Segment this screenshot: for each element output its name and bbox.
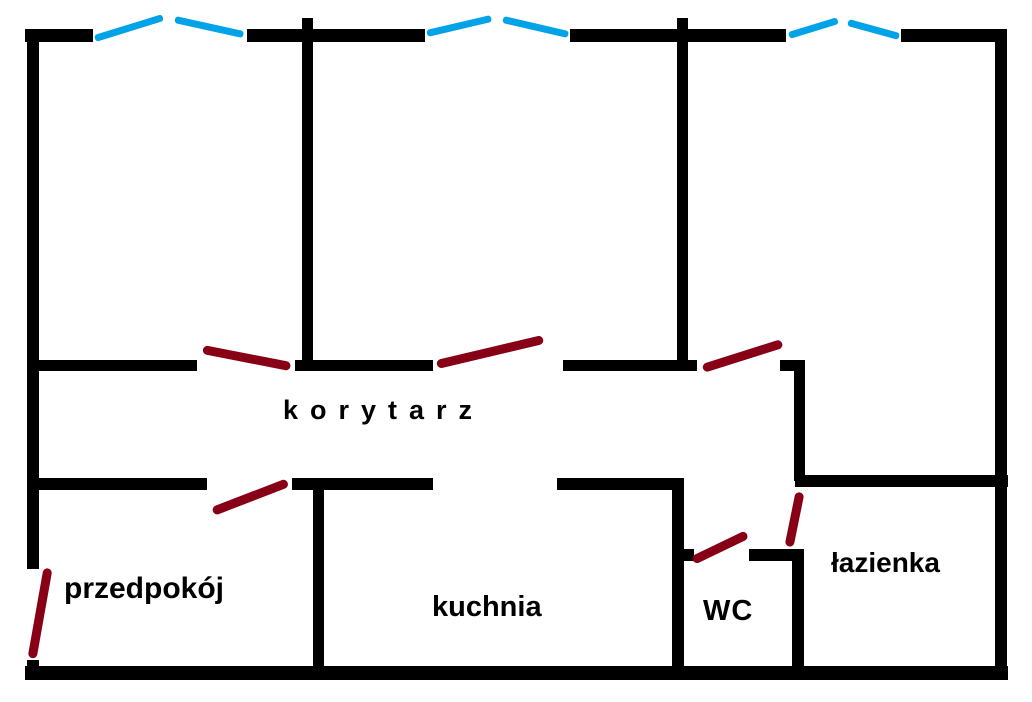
divider-room1-room2 <box>302 18 313 371</box>
room-label-kuchnia: kuchnia <box>432 592 542 624</box>
corridor-top-wall-3 <box>563 360 697 371</box>
window-room1-right-pane <box>174 16 243 38</box>
floor-plan: korytarz przedpokój kuchnia WC łazienka <box>0 0 1032 702</box>
bottom-wall <box>25 666 1008 680</box>
top-wall-segment-4 <box>901 29 1004 42</box>
window-room1-left-pane <box>94 14 164 42</box>
door-entrance <box>28 567 53 659</box>
przedpokoj-kuchnia-wall <box>313 480 324 670</box>
corridor-bottom-wall-1 <box>27 478 207 490</box>
window-room2-right-pane <box>502 16 569 38</box>
door-wc <box>691 530 749 564</box>
window-room2-left-pane <box>426 15 492 37</box>
room-label-korytarz: korytarz <box>283 396 484 426</box>
corridor-top-wall-1 <box>27 360 197 371</box>
corridor-bottom-wall-4 <box>795 475 1008 487</box>
room-label-przedpokoj: przedpokój <box>64 572 224 605</box>
door-room2 <box>436 335 544 369</box>
room-label-wc: WC <box>703 596 753 628</box>
corridor-bottom-wall-3 <box>557 478 684 490</box>
divider-room2-room3 <box>677 18 688 371</box>
right-wall <box>995 29 1007 680</box>
kuchnia-wc-wall <box>672 480 684 670</box>
lazienka-corridor-wall <box>794 360 805 481</box>
door-room1 <box>202 345 291 371</box>
top-wall-segment-2 <box>247 29 425 42</box>
window-room3-right-pane <box>847 19 900 40</box>
door-lazienka <box>785 491 805 547</box>
wc-lazienka-wall <box>792 549 804 670</box>
window-room3-left-pane <box>788 17 839 39</box>
room-label-lazienka: łazienka <box>831 548 940 579</box>
door-room3 <box>702 339 784 373</box>
corridor-top-wall-2 <box>295 360 433 371</box>
door-przedpokoj <box>211 478 289 515</box>
